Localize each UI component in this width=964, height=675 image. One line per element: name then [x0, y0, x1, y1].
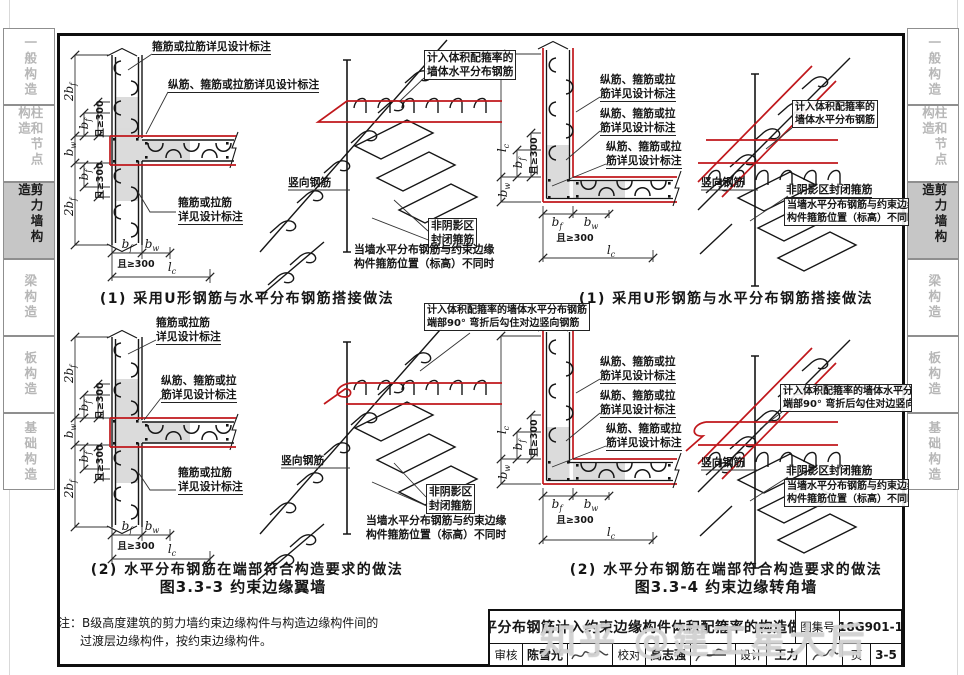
dimension-label: bw: [496, 465, 512, 480]
annotation-line: 当墙水平分布钢筋与约束边缘: [787, 480, 906, 493]
dimension-label: bf: [77, 119, 93, 130]
tab-label: 柱和节点构造: [17, 106, 42, 181]
tab-label: 基础构造: [23, 421, 36, 483]
annotation-stirrup-tie: 箍筋或拉筋 详见设计标注: [178, 196, 243, 225]
signature-scribble: [809, 645, 841, 665]
annotation-line: 计入体积配箍率的: [795, 101, 875, 114]
tab-label: 梁构造: [927, 274, 940, 321]
dimension-label: bf: [511, 158, 527, 169]
annotation-line: 构件箍筋位置（标高）不同时: [787, 212, 906, 225]
annotation-line: 纵筋、箍筋或拉: [161, 374, 237, 388]
dimension-label: 且≥300: [117, 256, 154, 270]
annotation-line: 详见设计标注: [156, 330, 221, 344]
annotation-line: 非阴影区: [429, 485, 472, 499]
annotation-wall-horizontal-rebar: 计入体积配箍率的 墙体水平分布钢筋: [424, 50, 516, 80]
figure-title-3-3-4: 图3.3-4 约束边缘转角墙: [635, 576, 817, 597]
annotation-line: 端部90° 弯折后勾住对边竖向钢筋: [783, 398, 909, 411]
tab-shear-wall-construction[interactable]: 剪力墙构造: [907, 182, 959, 259]
annotation-longitudinal: 纵筋、箍筋或拉 筋详见设计标注: [600, 107, 676, 136]
annotation-vertical-rebar: 竖向钢筋: [281, 454, 324, 468]
annotation-line: 构件箍筋位置（标高）不同时: [366, 528, 506, 542]
tab-label: 剪力墙构造: [17, 183, 42, 258]
review-label: 审核: [490, 644, 522, 665]
caption-method-1: (1) 采用U形钢筋与水平分布钢筋搭接做法: [100, 288, 394, 308]
dimension-label: bf: [511, 440, 527, 451]
annotation-line: 筋详见设计标注: [600, 369, 676, 383]
dimension-label: bf: [552, 497, 563, 513]
tab-label: 基础构造: [927, 421, 940, 483]
dimension-label: lc: [495, 426, 511, 434]
annotation-line: 箍筋或拉筋: [178, 196, 243, 210]
dimension-label: bw: [62, 142, 78, 157]
annotation-line: 构件箍筋位置（标高）不同时: [787, 493, 906, 506]
annotation-vertical-rebar: 竖向钢筋: [701, 456, 744, 470]
annotation-nonshaded-stirrup: 非阴影区封闭箍筋: [786, 464, 872, 479]
annotation-stirrup-tie: 箍筋或拉筋 详见设计标注: [156, 316, 221, 345]
dimension-label: 2bf: [62, 365, 78, 383]
annotation-line: 详见设计标注: [178, 480, 243, 494]
signature-scribble: [692, 645, 734, 665]
annotation-line: 纵筋、箍筋或拉: [600, 389, 676, 403]
tab-label: 一般构造: [23, 36, 36, 98]
annotation-stirrup-tie: 箍筋或拉筋 详见设计标注: [178, 466, 243, 495]
title-block: 水平分布钢筋计入约束边缘构件体积配箍率的构造做法 图集号 18G901-1 审核…: [488, 609, 903, 667]
annotation-line: 当墙水平分布钢筋与约束边缘: [366, 514, 506, 528]
annotation-line: 当墙水平分布钢筋与约束边缘: [787, 199, 906, 212]
dimension-label: bw: [584, 215, 599, 231]
dimension-label: 且≥300: [92, 100, 106, 137]
annotation-line: 箍筋或拉筋: [178, 466, 243, 480]
annotation-line: 构件箍筋位置（标高）不同时: [354, 257, 494, 271]
dimension-label: 且≥300: [526, 137, 540, 174]
dimension-label: bw: [145, 519, 160, 535]
atlas-page: 一般构造 柱和节点构造 剪力墙构造 梁构造 板构造 基础构造 一般构造 柱和节点…: [0, 0, 964, 675]
dimension-label: bf: [122, 237, 133, 253]
annotation-line: 当墙水平分布钢筋与约束边缘: [354, 243, 494, 257]
annotation-line: 筋详见设计标注: [606, 154, 682, 168]
dimension-label: 且≥300: [556, 230, 593, 244]
dimension-label: 2bf: [62, 83, 78, 101]
tab-shear-wall-construction[interactable]: 剪力墙构造: [3, 182, 55, 259]
annotation-vertical-rebar: 竖向钢筋: [701, 176, 744, 190]
note-line: 过渡层边缘构件，按约束边缘构件。: [58, 632, 378, 650]
annotation-line: 箍筋或拉筋: [156, 316, 221, 330]
dimension-label: lc: [607, 525, 615, 541]
annotation-line: 详见设计标注: [178, 210, 243, 224]
note-line: 注：B级高度建筑的剪力墙约束边缘构件与构造边缘构件间的: [58, 614, 378, 632]
signature-scribble: [569, 645, 611, 665]
tab-label: 板构造: [23, 351, 36, 398]
annotation-different-level: 当墙水平分布钢筋与约束边缘 构件箍筋位置（标高）不同时: [784, 479, 909, 507]
annotation-line: 纵筋、箍筋或拉: [600, 355, 676, 369]
page-number: 3-5: [870, 644, 901, 665]
dimension-label: 且≥300: [556, 512, 593, 526]
atlas-number-label: 图集号: [795, 611, 839, 643]
annotation-different-level: 当墙水平分布钢筋与约束边缘 构件箍筋位置（标高）不同时: [366, 514, 506, 542]
dimension-label: bw: [496, 183, 512, 198]
dimension-label: 且≥300: [526, 419, 540, 456]
tab-slab-construction[interactable]: 板构造: [907, 336, 959, 413]
annotation-line: 墙体水平分布钢筋: [427, 65, 513, 79]
caption-method-1: (1) 采用U形钢筋与水平分布钢筋搭接做法: [579, 288, 873, 308]
annotation-longitudinal: 纵筋、箍筋或拉 筋详见设计标注: [600, 355, 676, 384]
annotation-longitudinal: 纵筋、箍筋或拉 筋详见设计标注: [606, 140, 682, 169]
annotation-longitudinal: 纵筋、箍筋或拉筋详见设计标注: [168, 78, 319, 93]
annotation-different-level: 当墙水平分布钢筋与约束边缘 构件箍筋位置（标高）不同时: [784, 198, 909, 226]
tab-column-joint-construction[interactable]: 柱和节点构造: [907, 105, 959, 182]
dimension-label: bf: [77, 170, 93, 181]
annotation-line: 非阴影区: [431, 219, 474, 233]
designer-name: 王力: [766, 644, 806, 665]
tab-label: 板构造: [927, 351, 940, 398]
annotation-vertical-rebar: 竖向钢筋: [288, 176, 331, 190]
checker-name: 高志强: [645, 644, 690, 665]
dimension-label: lc: [168, 542, 176, 558]
page-label: 页: [842, 644, 870, 665]
tab-slab-construction[interactable]: 板构造: [3, 336, 55, 413]
annotation-wall-horizontal-rebar-hook90: 计入体积配箍率的墙体水平分布钢筋 端部90° 弯折后勾住对边竖向钢筋: [424, 303, 590, 331]
atlas-number-value: 18G901-1: [839, 611, 901, 643]
dimension-label: bf: [552, 215, 563, 231]
dimension-label: 且≥300: [92, 382, 106, 419]
annotation-line: 筋详见设计标注: [600, 403, 676, 417]
annotation-line: 筋详见设计标注: [600, 121, 676, 135]
tab-label: 剪力墙构造: [921, 183, 946, 258]
tab-general-construction[interactable]: 一般构造: [3, 28, 55, 105]
design-label: 设计: [735, 644, 766, 665]
annotation-line: 计入体积配箍率的墙体水平分布钢筋: [427, 304, 587, 317]
annotation-line: 纵筋、箍筋或拉: [606, 422, 682, 436]
dimension-label: bf: [122, 519, 133, 535]
sheet-title: 水平分布钢筋计入约束边缘构件体积配箍率的构造做法: [490, 611, 795, 643]
tab-label: 梁构造: [23, 274, 36, 321]
dimension-label: bw: [145, 237, 160, 253]
annotation-line: 计入体积配箍率的: [427, 51, 513, 65]
tab-column-joint-construction[interactable]: 柱和节点构造: [3, 105, 55, 182]
dimension-label: bf: [77, 401, 93, 412]
dimension-label: lc: [495, 144, 511, 152]
annotation-stirrup-tie: 箍筋或拉筋详见设计标注: [152, 40, 271, 55]
annotation-line: 计入体积配箍率的墙体水平分布钢筋: [783, 385, 909, 398]
dimension-label: 且≥300: [92, 162, 106, 199]
dimension-label: 2bf: [62, 198, 78, 216]
annotation-line: 纵筋、箍筋或拉: [600, 73, 676, 87]
tab-foundation-construction[interactable]: 基础构造: [907, 413, 959, 490]
tab-foundation-construction[interactable]: 基础构造: [3, 413, 55, 490]
dimension-label: 且≥300: [92, 444, 106, 481]
tab-general-construction[interactable]: 一般构造: [907, 28, 959, 105]
dimension-label: bw: [584, 497, 599, 513]
annotation-line: 纵筋、箍筋或拉: [600, 107, 676, 121]
figure-title-3-3-3: 图3.3-3 约束边缘翼墙: [160, 576, 326, 597]
reviewer-signature: [567, 644, 612, 665]
dimension-label: bf: [77, 452, 93, 463]
annotation-wall-horizontal-rebar: 计入体积配箍率的 墙体水平分布钢筋: [792, 100, 878, 128]
annotation-different-level: 当墙水平分布钢筋与约束边缘 构件箍筋位置（标高）不同时: [354, 243, 494, 271]
annotation-longitudinal: 纵筋、箍筋或拉 筋详见设计标注: [606, 422, 682, 451]
tab-beam-construction[interactable]: 梁构造: [3, 259, 55, 336]
annotation-longitudinal: 纵筋、箍筋或拉 筋详见设计标注: [600, 389, 676, 418]
designer-signature: [806, 644, 842, 665]
dimension-label: lc: [607, 243, 615, 259]
annotation-line: 端部90° 弯折后勾住对边竖向钢筋: [427, 317, 587, 330]
annotation-wall-horizontal-rebar-hook90: 计入体积配箍率的墙体水平分布钢筋 端部90° 弯折后勾住对边竖向钢筋: [780, 384, 912, 412]
tab-label: 柱和节点构造: [921, 106, 946, 181]
check-label: 校对: [612, 644, 645, 665]
annotation-longitudinal: 纵筋、箍筋或拉 筋详见设计标注: [161, 374, 237, 403]
reviewer-name: 陈雪光: [522, 644, 567, 665]
dimension-label: lc: [168, 260, 176, 276]
tab-label: 一般构造: [927, 36, 940, 98]
dimension-label: 2bf: [62, 480, 78, 498]
annotation-line: 筋详见设计标注: [161, 388, 237, 402]
annotation-line: 墙体水平分布钢筋: [795, 114, 875, 127]
annotation-longitudinal: 纵筋、箍筋或拉 筋详见设计标注: [600, 73, 676, 102]
annotation-nonshaded-stirrup: 非阴影区封闭箍筋: [786, 183, 872, 198]
annotation-line: 筋详见设计标注: [600, 87, 676, 101]
annotation-line: 封闭箍筋: [429, 499, 472, 513]
annotation-line: 纵筋、箍筋或拉: [606, 140, 682, 154]
annotation-line: 筋详见设计标注: [606, 436, 682, 450]
note: 注：B级高度建筑的剪力墙约束边缘构件与构造边缘构件间的 过渡层边缘构件，按约束边…: [58, 614, 378, 650]
tab-beam-construction[interactable]: 梁构造: [907, 259, 959, 336]
dimension-label: bw: [62, 424, 78, 439]
annotation-nonshaded-stirrup: 非阴影区 封闭箍筋: [426, 484, 475, 514]
checker-signature: [690, 644, 735, 665]
dimension-label: 且≥300: [117, 538, 154, 552]
